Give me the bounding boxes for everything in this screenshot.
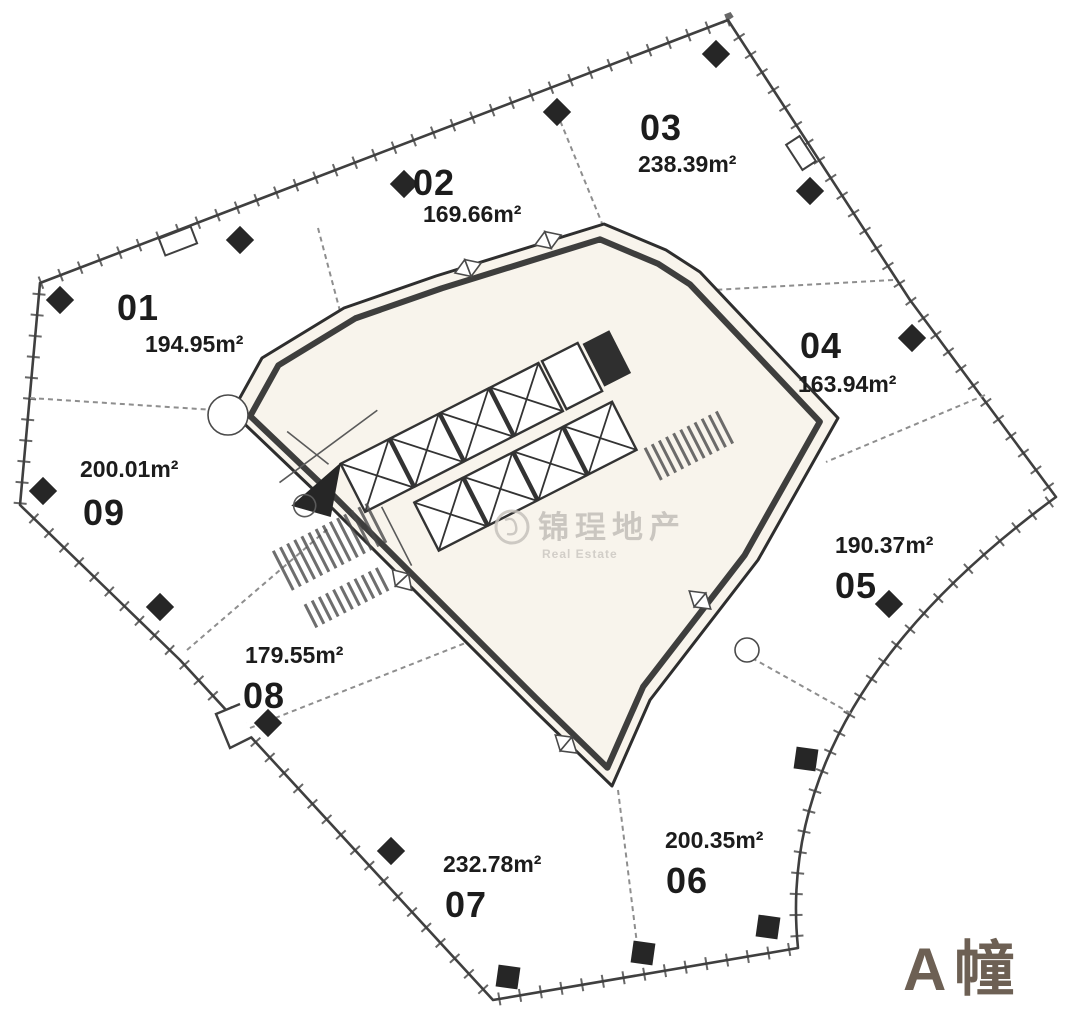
column-marker [226,226,254,254]
column-marker [29,477,57,505]
unit-label-06: 200.35m² 06 [665,827,764,901]
unit-05-number: 05 [835,565,877,606]
partition-09-01 [30,398,230,411]
column-marker [898,324,926,352]
column-marker [796,177,824,205]
unit-04-area: 163.94m² [798,371,897,397]
column-marker [631,941,656,966]
floor-plan-page: 01 194.95m² 02 169.66m² 03 238.39m² 04 1… [0,0,1073,1024]
partition-04-05 [826,395,985,462]
unit-02-area: 169.66m² [423,201,522,227]
unit-08-number: 08 [243,675,285,716]
stair-left-2 [310,577,387,616]
core-left-door-arc [208,395,248,435]
core [208,224,838,786]
unit-label-08: 179.55m² 08 [243,642,344,716]
unit-09-number: 09 [83,492,125,533]
partition-08-09 [187,527,330,650]
core-right-door-arc [735,638,759,662]
column-marker [702,40,730,68]
unit-label-02: 02 169.66m² [413,162,522,227]
unit-08-area: 179.55m² [245,642,344,668]
building-label: A幢 [903,936,1022,1003]
column-marker [377,837,405,865]
unit-label-07: 232.78m² 07 [443,851,542,925]
partition-06-07 [618,790,638,952]
unit-label-01: 01 194.95m² [117,287,244,357]
unit-09-area: 200.01m² [80,456,179,482]
partition-05-06 [752,658,852,714]
unit-06-number: 06 [666,860,708,901]
unit-01-number: 01 [117,287,159,328]
column-marker [794,747,819,772]
unit-02-number: 02 [413,162,455,203]
unit-label-03: 03 238.39m² [638,107,737,177]
column-marker [543,98,571,126]
column-marker [146,593,174,621]
watermark-text-en: Real Estate [542,547,618,561]
unit-label-09: 200.01m² 09 [80,456,179,533]
unit-07-area: 232.78m² [443,851,542,877]
column-marker [875,590,903,618]
unit-04-number: 04 [800,325,842,366]
unit-06-area: 200.35m² [665,827,764,853]
unit-03-area: 238.39m² [638,151,737,177]
unit-01-area: 194.95m² [145,331,244,357]
unit-07-number: 07 [445,884,487,925]
watermark-text-cn: 锦珵地产 [538,510,686,545]
column-marker [756,915,781,940]
partition-02-03 [557,113,608,238]
column-marker [46,286,74,314]
unit-03-number: 03 [640,107,682,148]
column-marker [496,965,521,990]
wall-door-top-left [159,227,197,256]
unit-05-area: 190.37m² [835,532,934,558]
floor-plan-svg: 01 194.95m² 02 169.66m² 03 238.39m² 04 1… [0,0,1073,1024]
unit-label-04: 04 163.94m² [798,325,897,397]
